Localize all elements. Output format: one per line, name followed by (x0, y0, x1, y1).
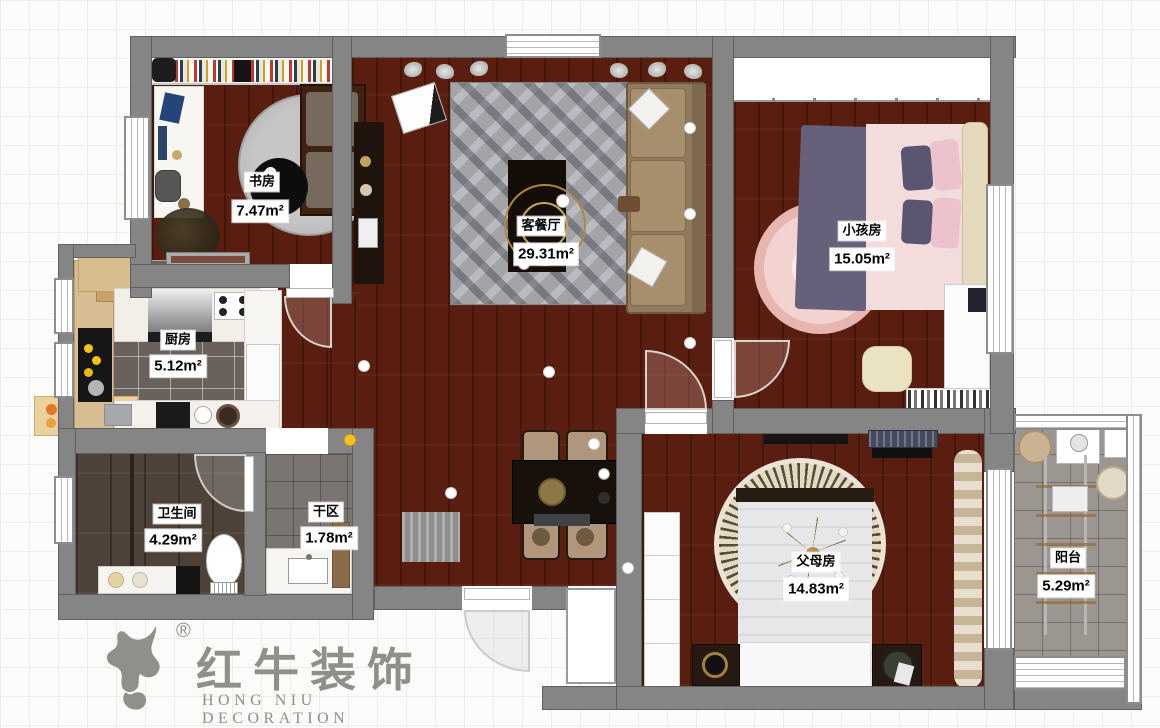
doormat[interactable] (402, 512, 460, 562)
balcony-sink[interactable] (1104, 428, 1128, 458)
chandelier-bulb-2 (838, 527, 848, 537)
window-bath-west[interactable] (54, 476, 74, 544)
room-area-kitchen: 5.12m² (150, 355, 206, 377)
wall-hall-south (374, 586, 464, 610)
wall-kitchen-west (58, 244, 74, 434)
lemon-2 (92, 356, 101, 365)
desk-clutter[interactable] (152, 58, 176, 82)
kids-pillow-pink-2 (930, 197, 961, 249)
parents-duvet-fold (740, 642, 870, 690)
room-area-parents: 14.83m² (784, 578, 848, 600)
hall-floor-b (330, 298, 356, 434)
ceiling-light-6 (684, 122, 696, 134)
room-label-kitchen: 厨房 (161, 331, 195, 350)
tv-console[interactable] (354, 122, 384, 284)
chandelier-bulb (782, 523, 792, 533)
wall-shelf-strip (764, 434, 848, 444)
burner (219, 296, 227, 304)
study-door-leaf[interactable] (286, 288, 334, 298)
wall-parents-east-lower (984, 648, 1014, 710)
window-kitchen-west-2[interactable] (54, 342, 74, 398)
wall-study-east (332, 36, 352, 304)
ceiling-light-4 (588, 438, 600, 450)
plant-decor-4 (610, 63, 628, 78)
parents-headboard (736, 488, 874, 502)
brand-subtitle: HONG NIU DECORATION (202, 692, 460, 728)
lemon-3 (84, 368, 93, 377)
kids-pillow-dark-2 (901, 199, 933, 245)
brand-name: 红牛装饰 (196, 634, 424, 700)
fridge[interactable] (246, 344, 280, 402)
wall-kids-west-lower (712, 400, 734, 434)
table-lamp-left[interactable] (702, 652, 728, 678)
window-kitchen-west[interactable] (54, 278, 74, 334)
desk-item (172, 150, 182, 160)
dry-area-doorway[interactable] (266, 428, 328, 454)
window-living-north[interactable] (505, 34, 601, 58)
kids-door-leaf[interactable] (714, 340, 732, 398)
vanity-bowl (108, 572, 124, 588)
window-balcony-south[interactable] (1014, 656, 1126, 690)
light-shaft (566, 588, 616, 684)
ceiling-light-8 (684, 337, 696, 349)
washer-door (1070, 434, 1088, 452)
ceiling-light-5 (622, 562, 634, 574)
candle-decor (360, 156, 371, 167)
toilet[interactable] (206, 534, 242, 586)
balcony-stool (1052, 486, 1088, 512)
room-label-dry: 干区 (309, 503, 343, 522)
window-balcony-east[interactable] (1126, 414, 1142, 704)
kids-pillow-pink (929, 139, 962, 192)
wall-parents-west (616, 408, 642, 710)
ceiling-light (358, 360, 370, 372)
window-kids-east[interactable] (986, 184, 1014, 354)
kids-laptop[interactable] (968, 288, 988, 312)
teacup (556, 194, 570, 208)
wall-study-south (130, 264, 290, 288)
kids-pillow-dark (901, 145, 934, 191)
kitchen-sink[interactable] (216, 404, 240, 428)
room-label-bath: 卫生间 (153, 505, 200, 524)
chair-cushion-dot-2 (576, 528, 594, 546)
room-area-study: 7.47m² (232, 200, 288, 222)
room-label-living: 客餐厅 (517, 217, 564, 236)
room-label-kids: 小孩房 (838, 222, 885, 241)
entry-door-leaf[interactable] (464, 588, 530, 600)
room-label-balcony: 阳台 (1051, 549, 1085, 568)
wall-dry-east (352, 428, 374, 620)
wall-parents-south (616, 686, 1016, 710)
vase-decor (360, 184, 372, 196)
dish-rack (156, 402, 190, 430)
chair-cushion-dot (532, 528, 550, 546)
pan (88, 380, 104, 396)
entry-door-swing (464, 610, 530, 672)
kitchen-upper-cabinet[interactable] (78, 256, 136, 292)
kids-shelf-books (908, 390, 990, 410)
monitor[interactable] (158, 126, 167, 160)
window-parents-balcony[interactable] (986, 468, 1012, 650)
kids-bed-blanket[interactable] (795, 125, 873, 311)
serving-tray (538, 478, 566, 506)
sofa-backrest (692, 84, 706, 312)
pouf[interactable] (862, 346, 912, 392)
wall-hall-south-2 (530, 586, 568, 610)
air-conditioner[interactable] (868, 430, 938, 448)
room-label-study: 书房 (245, 173, 279, 192)
wall-balcony-south (1014, 688, 1142, 710)
room-area-living: 29.31m² (514, 243, 578, 265)
kids-bay-window-ticks (734, 98, 990, 102)
bookshelf-dark-box (234, 60, 251, 82)
lumbar-pillow (618, 196, 640, 212)
floor-plan-canvas: 书房 7.47m² 客餐厅 29.31m² 小孩房 15.05m² 厨房 5.1… (0, 0, 1160, 728)
wall-kids-west (712, 36, 734, 338)
wall-kids-east-upper (990, 36, 1014, 186)
ceiling-light-2 (445, 487, 457, 499)
toilet-tank (210, 582, 238, 594)
bath-cabinet[interactable] (176, 566, 200, 594)
radiator-core (171, 256, 245, 263)
dining-bench[interactable] (534, 514, 590, 526)
orange-fruit (46, 404, 57, 415)
room-label-parents: 父母房 (792, 553, 839, 572)
plant-decor-2 (436, 64, 454, 79)
range-hood[interactable] (148, 290, 212, 332)
faucet (306, 554, 312, 560)
wardrobe[interactable] (644, 512, 680, 688)
table-plate (598, 468, 610, 480)
table-bowl (598, 492, 610, 504)
desk-chair[interactable] (155, 170, 181, 202)
kettle (194, 406, 212, 424)
bull-icon (100, 622, 186, 723)
wall-kids-east-lower (990, 352, 1014, 434)
wall-bath-south (58, 594, 374, 620)
dry-area-sink (288, 558, 328, 584)
parents-door-leaf[interactable] (645, 412, 707, 424)
bath-door-leaf[interactable] (244, 456, 254, 512)
room-area-kids: 15.05m² (830, 248, 894, 270)
lemon (84, 344, 93, 353)
study-door-gap (290, 264, 332, 288)
window-study-west[interactable] (124, 116, 150, 220)
brand-logo: ® 红牛装饰 HONG NIU DECORATION (100, 618, 460, 723)
vanity-bowl-2 (132, 572, 148, 588)
curtain[interactable] (954, 450, 982, 688)
plant-decor-6 (684, 64, 702, 79)
room-area-balcony: 5.29m² (1038, 575, 1094, 597)
ceiling-light-3 (543, 366, 555, 378)
orange-fruit-3 (46, 418, 56, 428)
kids-bay-window[interactable] (734, 58, 990, 102)
warm-light (344, 434, 356, 446)
cutting-board (104, 404, 132, 426)
room-area-bath: 4.29m² (145, 529, 201, 551)
photo-frame (358, 218, 378, 248)
window-balcony-north[interactable] (1014, 414, 1128, 430)
ceiling-light-7 (684, 208, 696, 220)
air-conditioner-base (872, 448, 932, 458)
room-area-dry: 1.78m² (301, 527, 357, 549)
registered-mark: ® (176, 620, 191, 643)
hanging-basket (1096, 466, 1130, 500)
burner-3 (219, 308, 227, 316)
